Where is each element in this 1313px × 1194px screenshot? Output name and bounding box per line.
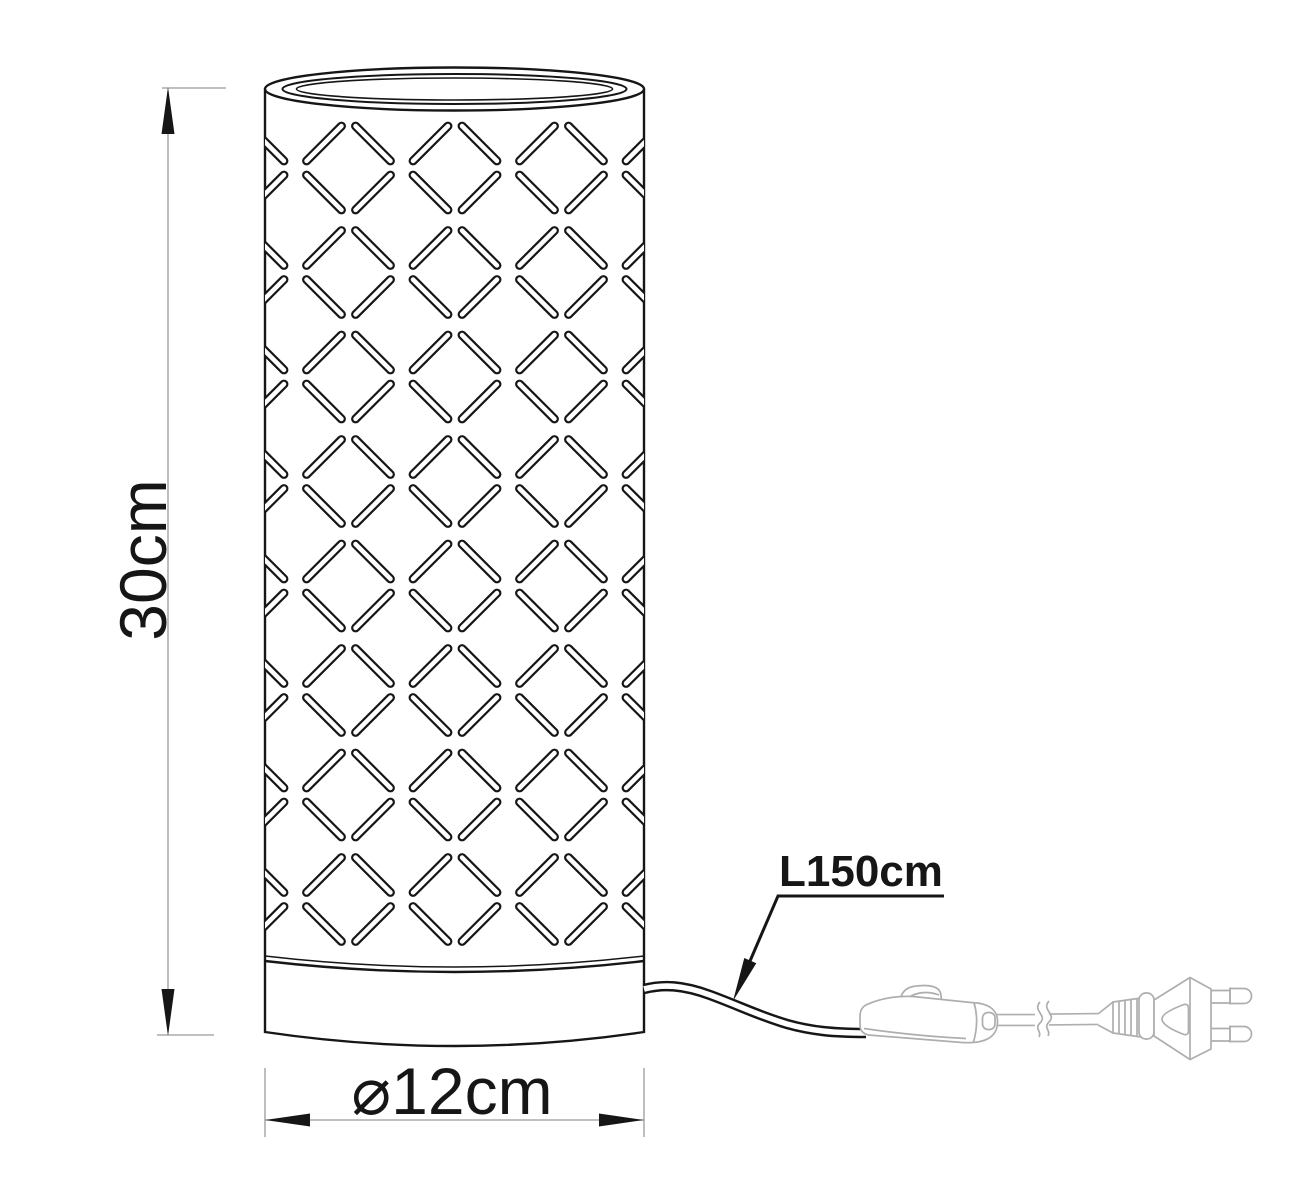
height-arrow-up: [162, 87, 175, 134]
cord-outline: [644, 986, 866, 1033]
top-opening: [265, 68, 644, 111]
switch-cable-outlet: [983, 1013, 996, 1030]
cable-segment-right-core: [1049, 1019, 1098, 1020]
lamp-dimension-drawing: 30cm ⌀12cm L150cm: [0, 0, 1313, 1194]
diameter-arrow-left: [265, 1114, 310, 1127]
cable-leader-arrow: [733, 958, 756, 1001]
cable-break-mark-left: [1038, 1002, 1043, 1037]
plug-pin-top: [1211, 988, 1252, 1005]
technical-drawing-page: 30cm ⌀12cm L150cm: [0, 0, 1313, 1194]
height-dimension: 30cm: [106, 87, 226, 1036]
height-arrow-down: [162, 989, 175, 1036]
cable-length-label: L150cm: [779, 847, 943, 896]
height-dimension-label: 30cm: [106, 479, 180, 640]
diameter-dimension: ⌀12cm: [265, 1054, 644, 1137]
plug-collar: [1139, 993, 1154, 1039]
power-cord: [644, 986, 866, 1033]
plug-cable-taper: [1098, 1002, 1113, 1033]
cable-leader-line: [750, 896, 944, 961]
plug-pin-bottom: [1211, 1026, 1252, 1043]
diameter-dimension-label: ⌀12cm: [351, 1054, 552, 1128]
diameter-arrow-right: [599, 1114, 644, 1127]
power-plug: [1098, 978, 1252, 1060]
plug-strain-relief: [1113, 998, 1141, 1037]
plug-cable: [994, 1001, 1098, 1037]
inline-switch: [860, 986, 998, 1043]
cable-length-callout: L150cm: [733, 847, 944, 1001]
lamp-shade: [200, 68, 710, 1047]
